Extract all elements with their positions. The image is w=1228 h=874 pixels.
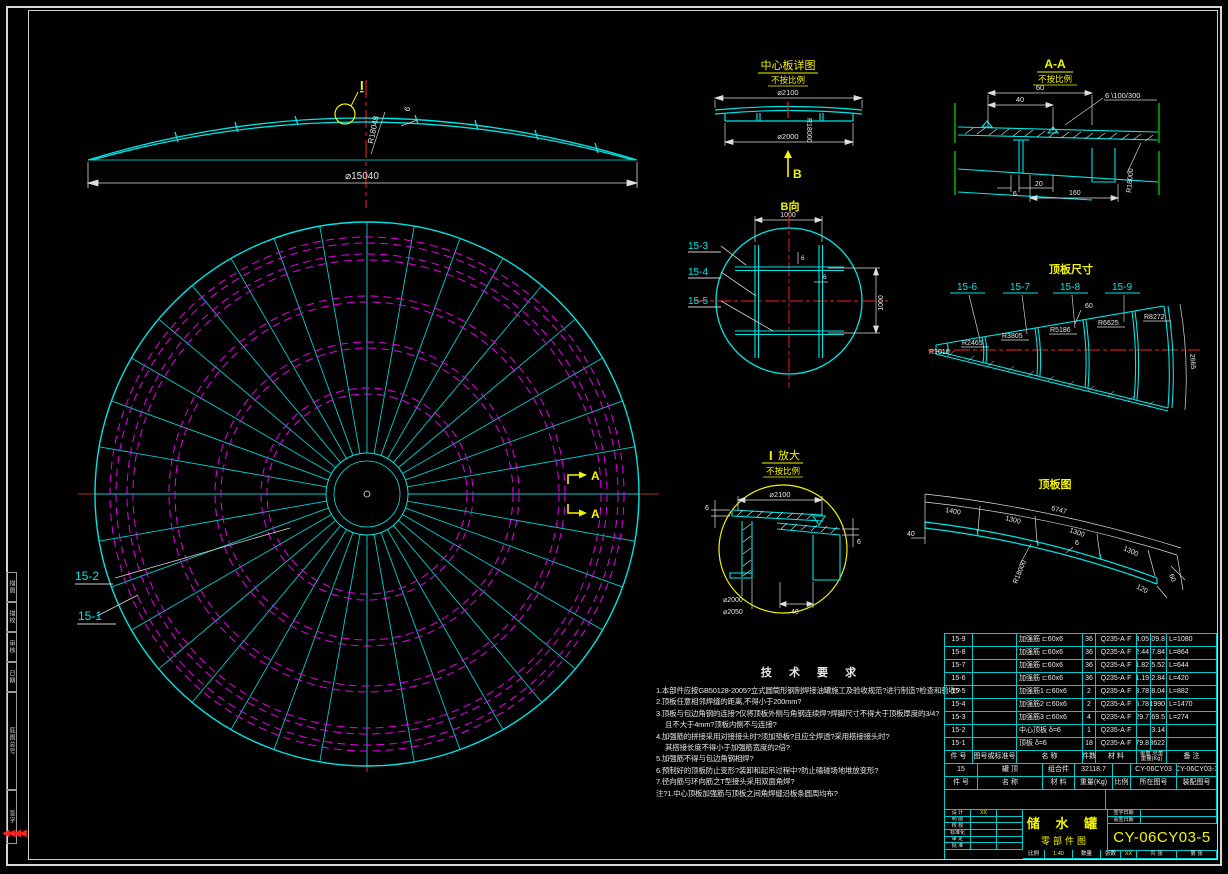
part-qty: 18 <box>1083 738 1096 751</box>
title-block: 设 计 XX 制 图 校 核 标准化 审 定 <box>945 810 1217 859</box>
empty-cell <box>945 790 1106 810</box>
part-leaders <box>969 295 1124 340</box>
part-total-weight: 163.14 <box>1151 725 1167 738</box>
part-material: Q235-A·F <box>1096 660 1137 673</box>
table-row: 15-8 加强筋 ⊏60x6 36 Q235-A·F 2.44 87.84 L=… <box>945 647 1217 660</box>
scale-label: 比例 <box>1023 850 1045 859</box>
part-note: L=274 <box>1167 712 1217 725</box>
part-unit-weight: 296.78 <box>1137 699 1151 712</box>
detail-i-view: I 放大 不按比例 ⌀2100 <box>683 446 888 646</box>
section-label-a-bottom: A <box>591 507 600 521</box>
header-name: 名 称 <box>1017 751 1083 764</box>
margin-cell: 描图 <box>6 572 17 602</box>
sign-label: 设 计 <box>945 810 971 817</box>
dim-60-label: 60 <box>1085 303 1093 310</box>
sig-date-blank <box>1141 810 1217 817</box>
sign-label: 校 核 <box>945 823 971 830</box>
part-label-15-2: 15-2 <box>75 569 99 583</box>
part-note: L=644 <box>1167 660 1217 673</box>
sign-value <box>971 823 997 830</box>
header-qty: 件数 <box>1083 751 1096 764</box>
dim-60-label: 60 <box>1036 83 1044 92</box>
radius-label: R18000 <box>1126 168 1135 193</box>
part-material: Q235-A·F <box>1096 634 1137 647</box>
scale-note: 不按比例 <box>771 75 805 85</box>
view-title: A-A <box>1044 57 1066 71</box>
part-note: L=420 <box>1167 673 1217 686</box>
sheet-value: XX <box>1121 850 1137 859</box>
part-id: 15-5 <box>945 686 973 699</box>
header-weight: 单重 总重 重量(Kg) <box>1137 751 1167 764</box>
part-label-15-4: 15-4 <box>688 267 708 278</box>
part-std <box>973 673 1017 686</box>
dia2000-label: ⌀2000 <box>723 597 743 604</box>
roof-elevation-view: ⌀15040 I R18048 6 <box>55 62 685 212</box>
part-material: Q235-A·F <box>1096 725 1137 738</box>
part-std <box>973 634 1017 647</box>
sign-value <box>971 817 997 824</box>
radius-r5186: R5186 <box>1050 327 1071 334</box>
cad-drawing-page: 描图 描校 审核 日期 底图总号 签字 ◀◀◀◀ ⌀15040 I R18048 <box>0 0 1228 874</box>
part-qty: 36 <box>1083 647 1096 660</box>
part-note: L=864 <box>1167 647 1217 660</box>
sign-date <box>997 837 1023 844</box>
seg-1300c-label: 1300 <box>1122 545 1139 558</box>
dim-60-label: 60 <box>1167 573 1176 583</box>
title-block-right: 签字日期 会签日期 CY-06CY03-5 <box>1107 810 1217 850</box>
center-plate-detail-view: 中心板详图 不按比例 ⌀2100 R18000 ⌀2000 B <box>690 56 890 184</box>
detail-mark: I <box>769 448 773 463</box>
part-id: 15-9 <box>945 634 973 647</box>
sign-row: 审 定 <box>945 837 1023 844</box>
part-std <box>973 699 1017 712</box>
radius-r6625: R6625 <box>1098 320 1119 327</box>
drawing-number-cell: CY-06CY03-5 <box>1107 824 1217 851</box>
doc-type: 零部件图 <box>1041 834 1089 847</box>
table-row: 15-7 加强筋 ⊏60x6 36 Q235-A·F 1.82 65.52 L=… <box>945 660 1217 673</box>
detail-leader <box>351 92 358 106</box>
part-label-15-9: 15-9 <box>1112 282 1132 293</box>
part-qty: 36 <box>1083 673 1096 686</box>
sheet-page-label: 第 张 <box>1177 850 1217 859</box>
sign-date <box>997 823 1023 830</box>
part-note: L=882 <box>1167 686 1217 699</box>
part-total-weight: 87.84 <box>1151 647 1167 660</box>
assembly-parent-dwg: CY-06CY03-1 <box>1177 764 1217 777</box>
tech-req-line: 5.加强筋不得与包边角钢相焊? <box>656 753 968 764</box>
assembly-weight: 32118.7 <box>1075 764 1113 777</box>
b-arrowhead-icon <box>784 150 792 158</box>
part-note: L=1470 <box>1167 699 1217 712</box>
dim-1000-right <box>828 268 880 333</box>
drawing-number: CY-06CY03-5 <box>1113 829 1211 846</box>
header-material: 材 料 <box>1096 751 1137 764</box>
part-qty: 36 <box>1083 660 1096 673</box>
part-material: Q235-A·F <box>1096 738 1137 751</box>
header-parent-dwg: 装配图号 <box>1177 777 1217 790</box>
dim-120-label: 120 <box>1135 584 1149 596</box>
weld-note-label: 6 \100/300 <box>1105 91 1140 100</box>
sign-row: 标准化 <box>945 830 1023 837</box>
scale-note: 不按比例 <box>766 466 800 476</box>
sign-row: 批 准 <box>945 843 1023 850</box>
part-qty: 2 <box>1083 686 1096 699</box>
sheet-total-label: 共 张 <box>1137 850 1177 859</box>
margin-cell: 描校 <box>6 602 17 632</box>
tech-req-title: 技 术 要 求 <box>656 664 968 680</box>
parts-table: 15-9 加强筋 ⊏60x6 36 Q235-A·F 3.05 109.8 L=… <box>944 633 1217 859</box>
margin-strip: 描图 描校 审核 日期 底图总号 签字 <box>6 572 28 844</box>
part-name: 加强筋 ⊏60x6 <box>1017 673 1083 686</box>
title-block-bottom-strip: 比例 1:40 数量 张数 XX 共 张 第 张 <box>1023 850 1217 859</box>
dim-6-label: 6 <box>1075 540 1079 547</box>
tech-req-line: 2.顶板任意相邻焊缝的距离,不得小于200mm? <box>656 696 968 707</box>
arc-dim-label: 2665 <box>1188 354 1196 370</box>
assembly-id: 15 <box>945 764 978 777</box>
sign-row: 校 核 <box>945 823 1023 830</box>
table-empty-band <box>945 790 1217 810</box>
part-std <box>973 725 1017 738</box>
dia2050-label: ⌀2050 <box>723 609 743 616</box>
seg-1400-label: 1400 <box>945 507 962 517</box>
arc-dim <box>1180 304 1186 410</box>
header-material: 材 料 <box>1043 777 1075 790</box>
dia-label: ⌀15040 <box>345 171 379 182</box>
radius-label: R18048 <box>366 115 381 145</box>
scale-value: 1:40 <box>1045 850 1073 859</box>
part-unit-weight: 479.8 <box>1137 738 1151 751</box>
part-name: 顶板 δ=6 <box>1017 738 1083 751</box>
title-block-center: 储 水 罐 零部件图 <box>1023 810 1108 850</box>
b-mark-label: B <box>793 167 802 181</box>
part-name: 加强筋 ⊏60x6 <box>1017 634 1083 647</box>
sign-value <box>971 830 997 837</box>
dim-40-label: 40 <box>907 531 915 538</box>
part-std <box>973 660 1017 673</box>
part-std <box>973 712 1017 725</box>
sign-value <box>971 843 997 850</box>
tech-req-line: 7.径向筋与环向筋之T型接头采用双面角焊? <box>656 776 968 787</box>
view-title: 顶板图 <box>1039 477 1072 491</box>
sign-date <box>997 830 1023 837</box>
header-scale: 比例 <box>1113 777 1131 790</box>
part-std <box>973 647 1017 660</box>
part-unit-weight: 1.19 <box>1137 673 1151 686</box>
dim-1000-top <box>755 216 822 242</box>
part-label-15-1: 15-1 <box>78 609 102 623</box>
view-title: 中心板详图 <box>761 58 816 72</box>
dia2100-label: ⌀2100 <box>777 88 798 97</box>
part-name: 加强筋 ⊏60x6 <box>1017 647 1083 660</box>
radius-label: R18000 <box>805 118 812 143</box>
part-id: 15-7 <box>945 660 973 673</box>
section-mark-a-top <box>568 472 587 485</box>
dim-40-label: 40 <box>791 609 799 616</box>
b-direction-view: B向 1000 1000 6 6 15-3 15-4 <box>688 200 900 386</box>
section-label-a-top: A <box>591 469 600 483</box>
joint-section <box>730 510 840 580</box>
stiffener-bars <box>735 245 844 358</box>
sign-row: 制 图 <box>945 817 1023 824</box>
assembly-row: 15 罐 顶 组合件 32118.7 CY-06CY03 CY-06CY03-1 <box>945 764 1217 777</box>
part-unit-weight: 3.78 <box>1137 686 1151 699</box>
part-unit-weight <box>1137 725 1151 738</box>
dim-40-label: 40 <box>1016 95 1024 104</box>
table-row: 15-9 加强筋 ⊏60x6 36 Q235-A·F 3.05 109.8 L=… <box>945 634 1217 647</box>
empty-cell <box>1106 790 1217 810</box>
radius-r2465: R2465 <box>962 340 983 347</box>
tech-req-line: 其搭接长度不得小于加强筋宽度的2倍? <box>656 742 968 753</box>
header-note: 备 注 <box>1167 751 1217 764</box>
assembly-name: 罐 顶 <box>978 764 1043 777</box>
table-header-row: 件 号 图号或标准号 名 称 件数 材 料 单重 总重 重量(Kg) 备 注 <box>945 751 1217 764</box>
radius-r3805: R3805 <box>1002 333 1023 340</box>
radius-r1010: R1010 <box>929 349 950 356</box>
sig-date-blank <box>1141 817 1217 824</box>
tech-req-line: 3.顶板与包边角钢的连接?仅将顶板外侧与角钢连续焊?焊脚尺寸不得大于顶板厚度的3… <box>656 708 968 719</box>
signature-grid: 设 计 XX 制 图 校 核 标准化 审 定 <box>945 810 1023 850</box>
part-total-weight: 42.84 <box>1151 673 1167 686</box>
dim-160-label: 160 <box>1069 190 1081 197</box>
part-id: 15-1 <box>945 738 973 751</box>
assembly-material: 组合件 <box>1043 764 1075 777</box>
roof-plan-view: 15-2 15-1 A A <box>75 218 665 778</box>
part-label-15-6: 15-6 <box>957 282 977 293</box>
sign-date <box>997 843 1023 850</box>
header-name: 名 称 <box>978 777 1043 790</box>
header-location-dwg: 所在图号 <box>1131 777 1177 790</box>
aa-section-view: A-A 不按比例 <box>945 55 1225 230</box>
part-name: 加强筋1 ⊏60x6 <box>1017 686 1083 699</box>
part-material: Q235-A·F <box>1096 673 1137 686</box>
assembly-scale <box>1113 764 1131 777</box>
part-label-15-3: 15-3 <box>688 241 708 252</box>
table-row: 15-4 加强筋2 ⊏60x6 2 Q235-A·F 296.78 1990 L… <box>945 699 1217 712</box>
table-row: 15-2 中心顶板 δ=6 1 Q235-A·F 163.14 <box>945 725 1217 738</box>
part-note: L=1080 <box>1167 634 1217 647</box>
tech-req-line: 4.加强筋的拼接采用对接接头时?须加垫板?且应全焊透?采用搭接接头时? <box>656 731 968 742</box>
header-weight-kg: 重量(Kg) <box>1141 757 1162 763</box>
detail-mark-label: I <box>360 78 364 93</box>
radius-r8272: R8272 <box>1144 314 1165 321</box>
dim-6b-label: 6 <box>823 274 827 281</box>
sig-date-label: 签字日期 <box>1107 810 1141 817</box>
header-std: 图号或标准号 <box>973 751 1017 764</box>
sign-value <box>971 837 997 844</box>
part-total-weight: 1990 <box>1151 699 1167 712</box>
part-id: 15-6 <box>945 673 973 686</box>
part-unit-weight: 1.82 <box>1137 660 1151 673</box>
sig-date-row: 签字日期 <box>1107 810 1217 817</box>
view-title: 放大 <box>778 448 800 462</box>
plate-curved-view: 顶板图 1400 1300 6747 1300 1300 120 60 40 6… <box>903 458 1218 623</box>
part-total-weight: 65.52 <box>1151 660 1167 673</box>
dim-20-label: 20 <box>1035 181 1043 188</box>
tech-req-line: 6.预制好的顶板防止变形?装卸和起吊过程中?防止磕碰场地堆放变形? <box>656 765 968 776</box>
part-total-weight: 8.04 <box>1151 686 1167 699</box>
part-qty: 36 <box>1083 634 1096 647</box>
part-std <box>973 686 1017 699</box>
plate-dimensions-view: 顶板尺寸 15-6 15-7 15-8 15-9 <box>928 262 1222 442</box>
detail-circle <box>335 104 355 124</box>
part-name: 加强筋 ⊏60x6 <box>1017 660 1083 673</box>
leader-15-1b <box>97 595 138 616</box>
table-header-row-b: 件 号 名 称 材 料 重量(Kg) 比例 所在图号 装配图号 <box>945 777 1217 790</box>
thk-label: 6 <box>402 105 412 113</box>
plot-mark-triangles-icon: ◀◀◀◀ <box>2 828 25 839</box>
technical-requirements: 技 术 要 求 1.本部件应按GB50128-2005?立式圆筒形钢制焊接油罐施… <box>656 664 968 799</box>
part-qty: 4 <box>1083 712 1096 725</box>
radius-label: R18000 <box>1012 559 1028 584</box>
part-unit-weight: 2.44 <box>1137 647 1151 660</box>
tech-req-line: 1.本部件应按GB50128-2005?立式圆筒形钢制焊接油罐施工及验收规范?进… <box>656 685 968 696</box>
assembly-location-dwg: CY-06CY03 <box>1131 764 1177 777</box>
dim-1000-top-label: 1000 <box>780 212 796 219</box>
part-id: 15-4 <box>945 699 973 712</box>
leader-15-2 <box>115 528 290 578</box>
sig-date-label: 会签日期 <box>1107 817 1141 824</box>
sign-label: 制 图 <box>945 817 971 824</box>
part-label-15-7: 15-7 <box>1010 282 1030 293</box>
sign-label: 批 准 <box>945 843 971 850</box>
header-id: 件 号 <box>945 777 978 790</box>
part-note <box>1167 725 1217 738</box>
tech-req-line: 且不大于4mm?顶板内侧不与连接? <box>656 719 968 730</box>
dia2100-label: ⌀2100 <box>769 490 790 499</box>
qty-label: 数量 <box>1073 850 1101 859</box>
part-name: 加强筋3 ⊏60x6 <box>1017 712 1083 725</box>
dim-6-label: 6 <box>1013 191 1017 198</box>
section-mark-a-bottom <box>568 504 587 517</box>
thk-left-label: 6 <box>705 505 709 512</box>
dim-1000-right-label: 1000 <box>878 295 885 311</box>
dim-6a-label: 6 <box>801 255 805 262</box>
tech-req-line: 注?1.中心顶板加强筋与顶板之间角焊缝沿板条圆周均布? <box>656 788 968 799</box>
part-std <box>973 738 1017 751</box>
table-row: 15-6 加强筋 ⊏60x6 36 Q235-A·F 1.19 42.84 L=… <box>945 673 1217 686</box>
sig-date-row: 会签日期 <box>1107 817 1217 824</box>
part-label-15-5: 15-5 <box>688 296 708 307</box>
margin-cell: 审核 <box>6 632 17 662</box>
view-title: B向 <box>781 199 800 213</box>
header-id: 件 号 <box>945 751 973 764</box>
thk-right-label: 6 <box>857 539 861 546</box>
part-name: 中心顶板 δ=6 <box>1017 725 1083 738</box>
sign-label: 审 定 <box>945 837 971 844</box>
part-id: 15-8 <box>945 647 973 660</box>
sign-date <box>997 817 1023 824</box>
sign-row: 设 计 XX <box>945 810 1023 817</box>
margin-cell: 日期 <box>6 662 17 692</box>
part-id: 15-2 <box>945 725 973 738</box>
margin-cell-tall: 底图总号 <box>6 692 17 790</box>
product-title: 储 水 罐 <box>1027 813 1103 832</box>
plan-geometry <box>95 222 639 766</box>
sheet-label: 张数 <box>1101 850 1121 859</box>
header-weight: 重量(Kg) <box>1075 777 1113 790</box>
view-title: 顶板尺寸 <box>1049 262 1093 276</box>
sign-label: 标准化 <box>945 830 971 837</box>
part-qty: 2 <box>1083 699 1096 712</box>
bottom-edge-hatch <box>948 351 1154 406</box>
part-material: Q235-A·F <box>1096 686 1137 699</box>
part-unit-weight: 529.7 <box>1137 712 1151 725</box>
part-qty: 1 <box>1083 725 1096 738</box>
dia2000-label: ⌀2000 <box>777 132 798 141</box>
part-note <box>1167 738 1217 751</box>
part-unit-weight: 3.05 <box>1137 634 1151 647</box>
table-row: 15-5 加强筋1 ⊏60x6 2 Q235-A·F 3.78 8.04 L=8… <box>945 686 1217 699</box>
part-name: 加强筋2 ⊏60x6 <box>1017 699 1083 712</box>
sign-date <box>997 810 1023 817</box>
part-material: Q235-A·F <box>1096 699 1137 712</box>
part-material: Q235-A·F <box>1096 712 1137 725</box>
dim-60-40 <box>988 91 1092 132</box>
part-label-15-8: 15-8 <box>1060 282 1080 293</box>
part-id: 15-3 <box>945 712 973 725</box>
table-row: 15-1 顶板 δ=6 18 Q235-A·F 479.8 8622 <box>945 738 1217 751</box>
table-row: 15-3 加强筋3 ⊏60x6 4 Q235-A·F 529.7 969.5 L… <box>945 712 1217 725</box>
part-total-weight: 969.5 <box>1151 712 1167 725</box>
seg-1300a-label: 1300 <box>1005 515 1022 526</box>
part-total-weight: 8622 <box>1151 738 1167 751</box>
sign-value: XX <box>971 810 997 817</box>
roof-arc <box>88 115 637 160</box>
part-material: Q235-A·F <box>1096 647 1137 660</box>
sector-outline <box>936 306 1173 411</box>
part-total-weight: 109.8 <box>1151 634 1167 647</box>
